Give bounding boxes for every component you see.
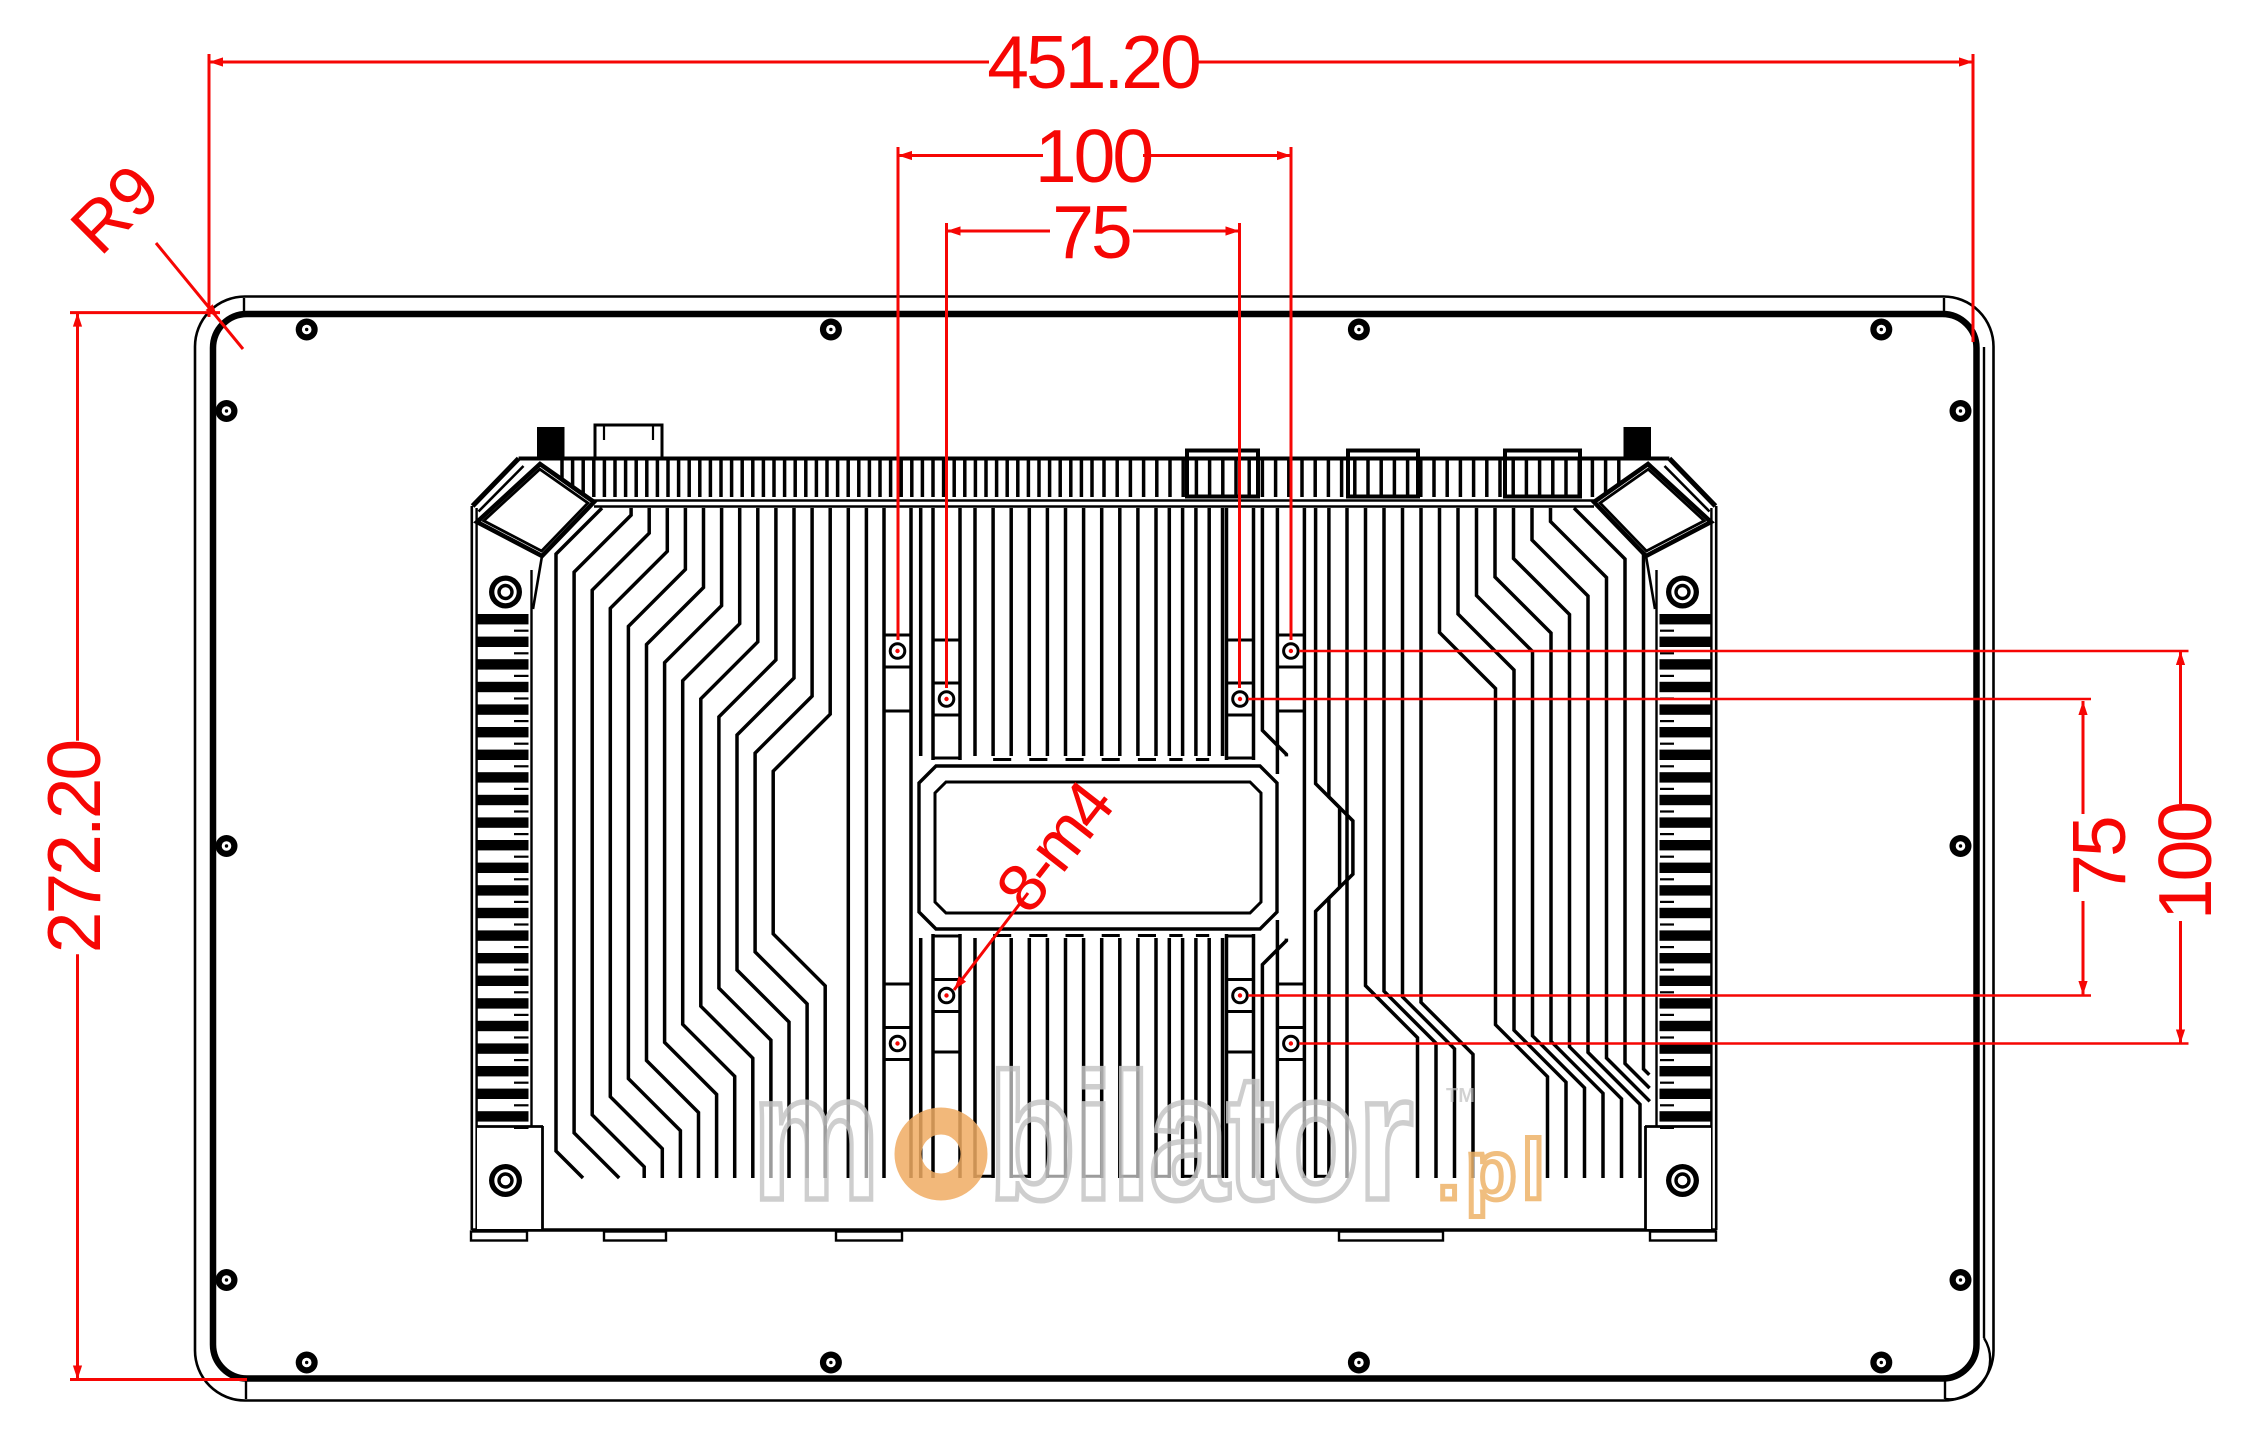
svg-text:TM: TM <box>1446 1085 1475 1107</box>
svg-text:75: 75 <box>1052 190 1130 274</box>
svg-text:75: 75 <box>2057 818 2141 896</box>
svg-text:272.20: 272.20 <box>32 742 116 954</box>
svg-text:100: 100 <box>1035 114 1151 198</box>
svg-text:bilator: bilator <box>988 1036 1411 1238</box>
svg-text:100: 100 <box>2143 804 2227 920</box>
svg-text:451.20: 451.20 <box>987 20 1199 104</box>
svg-text:.pl: .pl <box>1437 1123 1550 1217</box>
svg-text:m: m <box>752 1036 878 1238</box>
